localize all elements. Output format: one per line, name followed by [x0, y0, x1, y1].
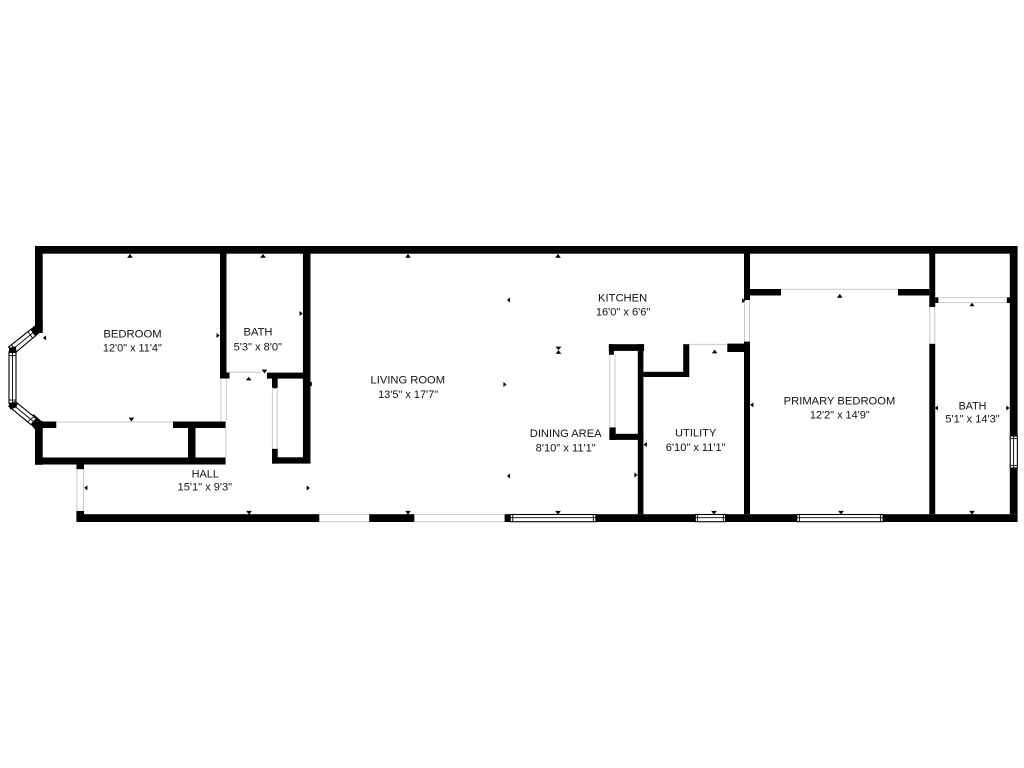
svg-text:6'10" x 11'1": 6'10" x 11'1" — [666, 442, 726, 454]
svg-text:UTILITY: UTILITY — [675, 428, 716, 440]
svg-text:5'3" x 8'0": 5'3" x 8'0" — [234, 342, 283, 354]
svg-text:16'0" x 6'6": 16'0" x 6'6" — [596, 306, 651, 318]
svg-text:8'10" x 11'1": 8'10" x 11'1" — [536, 442, 596, 454]
svg-text:5'1" x 14'3": 5'1" x 14'3" — [945, 413, 999, 425]
svg-text:DINING AREA: DINING AREA — [530, 428, 603, 440]
svg-text:PRIMARY BEDROOM: PRIMARY BEDROOM — [784, 396, 896, 408]
svg-text:13'5" x 17'7": 13'5" x 17'7" — [378, 389, 438, 401]
svg-text:12'0" x 11'4": 12'0" x 11'4" — [103, 343, 162, 355]
svg-text:15'1" x 9'3": 15'1" x 9'3" — [178, 482, 233, 494]
svg-text:12'2" x 14'9": 12'2" x 14'9" — [810, 410, 870, 422]
svg-text:BATH: BATH — [244, 327, 273, 339]
svg-text:HALL: HALL — [192, 468, 219, 480]
svg-text:KITCHEN: KITCHEN — [598, 292, 647, 304]
svg-text:BEDROOM: BEDROOM — [103, 328, 161, 340]
svg-text:BATH: BATH — [959, 401, 987, 413]
svg-text:LIVING ROOM: LIVING ROOM — [371, 375, 446, 387]
